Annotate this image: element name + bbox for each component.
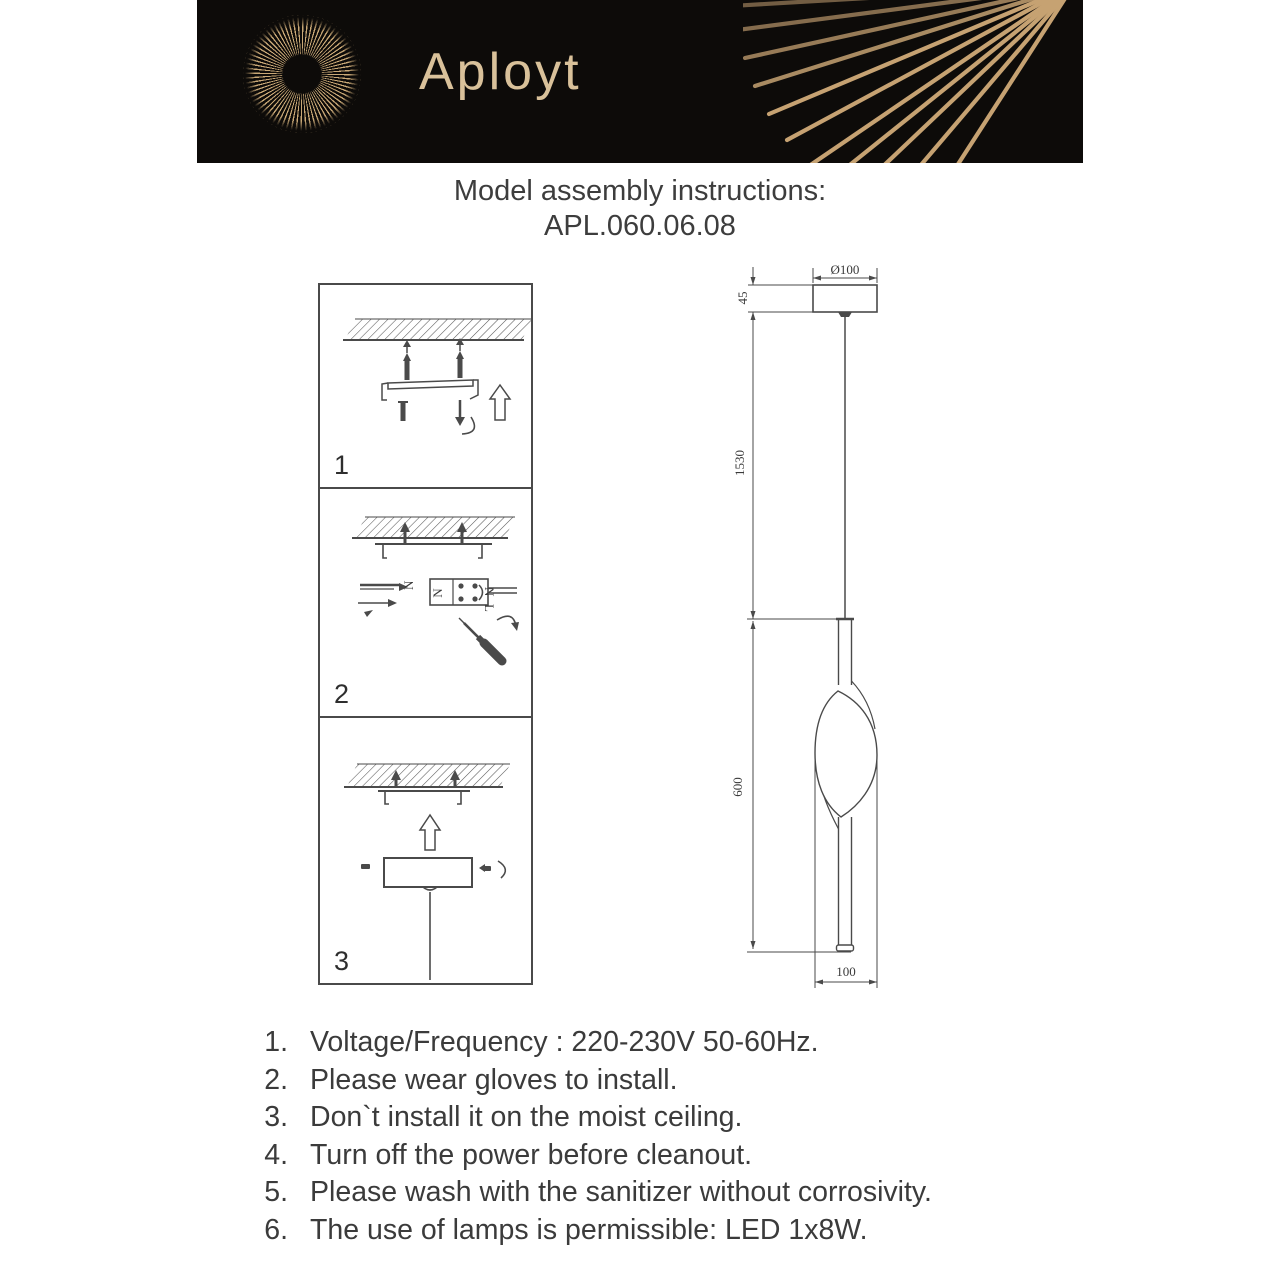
item-text: Please wear gloves to install.: [310, 1064, 678, 1097]
list-item: 3. Don`t install it on the moist ceiling…: [240, 1101, 1070, 1139]
screwdriver-icon: [459, 616, 519, 661]
mounting-bracket: [378, 791, 470, 804]
svg-text:45: 45: [735, 292, 750, 305]
svg-text:600: 600: [730, 777, 745, 797]
svg-text:Ø100: Ø100: [831, 262, 860, 277]
screw-icon: [398, 402, 408, 421]
lamp-body: [815, 619, 877, 951]
arrow-down-icon: [455, 400, 465, 426]
sunburst-logo-icon: [243, 15, 361, 133]
lamp-end-cap: [837, 945, 854, 951]
item-text: Turn off the power before cleanout.: [310, 1139, 752, 1172]
step-number: 3: [334, 946, 349, 977]
item-text: Please wash with the sanitizer without c…: [310, 1176, 932, 1209]
instruction-list: 1. Voltage/Frequency : 220-230V 50-60Hz.…: [240, 1026, 1070, 1251]
brand-header: Aployt: [197, 0, 1083, 163]
terminal-label-l: L: [482, 604, 497, 612]
terminal-label-n: N: [430, 588, 445, 598]
list-item: 1. Voltage/Frequency : 220-230V 50-60Hz.: [240, 1026, 1070, 1064]
step-1-box: 1: [318, 283, 533, 489]
step-2-box: N N N L: [318, 487, 533, 718]
instruction-sheet: Aployt Model assembly instructions: APL.…: [0, 0, 1280, 1280]
step-3-box: 3: [318, 716, 533, 985]
step-1-diagram: [320, 285, 531, 487]
list-item: 6. The use of lamps is permissible: LED …: [240, 1214, 1070, 1252]
screw-icon: [361, 864, 370, 869]
screw-icon: [456, 338, 464, 378]
item-number: 3.: [240, 1101, 288, 1134]
item-number: 6.: [240, 1214, 288, 1247]
step-number: 2: [334, 679, 349, 710]
rotate-arrow-icon: [498, 861, 505, 878]
svg-text:1530: 1530: [732, 450, 747, 476]
ceiling-hatch: [343, 319, 531, 340]
mounting-bracket: [375, 544, 492, 558]
dimension-suspension-length: 1530: [732, 312, 851, 619]
screw-icon: [403, 340, 411, 380]
step-2-diagram: N N N L: [320, 489, 531, 716]
leaf-diffuser: [815, 691, 877, 817]
canopy: [384, 858, 472, 890]
wire-label-n: N: [401, 580, 416, 590]
step-3-diagram: [320, 718, 531, 983]
item-number: 2.: [240, 1064, 288, 1097]
cable-gland: [838, 312, 852, 317]
item-text: Don`t install it on the moist ceiling.: [310, 1101, 742, 1134]
title-block: Model assembly instructions: APL.060.06.…: [0, 174, 1280, 244]
terminal-block: N N L: [430, 579, 517, 612]
mounting-bracket: [382, 380, 478, 400]
supply-wires: N: [358, 580, 416, 617]
list-item: 5. Please wash with the sanitizer withou…: [240, 1176, 1070, 1214]
ceiling-hatch: [344, 764, 510, 787]
step-number: 1: [334, 450, 349, 481]
arrow-up-icon: [490, 385, 510, 420]
list-item: 4. Turn off the power before cleanout.: [240, 1139, 1070, 1177]
item-text: The use of lamps is permissible: LED 1x8…: [310, 1214, 868, 1247]
canopy: [813, 285, 877, 312]
rotate-arrow-icon: [462, 417, 474, 434]
item-number: 1.: [240, 1026, 288, 1059]
arrow-up-icon: [420, 815, 440, 850]
item-number: 4.: [240, 1139, 288, 1172]
page-title: Model assembly instructions:: [0, 174, 1280, 209]
model-number: APL.060.06.08: [0, 209, 1280, 244]
decorative-rays-icon: [743, 0, 1083, 163]
svg-text:100: 100: [836, 964, 856, 979]
dimension-canopy-diameter: Ø100: [813, 262, 877, 283]
item-text: Voltage/Frequency : 220-230V 50-60Hz.: [310, 1026, 819, 1059]
list-item: 2. Please wear gloves to install.: [240, 1064, 1070, 1102]
lamp-dimension-drawing: Ø100 45 1530 600: [725, 255, 925, 1000]
brand-name: Aployt: [419, 42, 582, 102]
dimension-canopy-height: 45: [735, 267, 813, 312]
screw-icon: [479, 864, 491, 872]
ceiling-hatch: [352, 517, 515, 538]
item-number: 5.: [240, 1176, 288, 1209]
